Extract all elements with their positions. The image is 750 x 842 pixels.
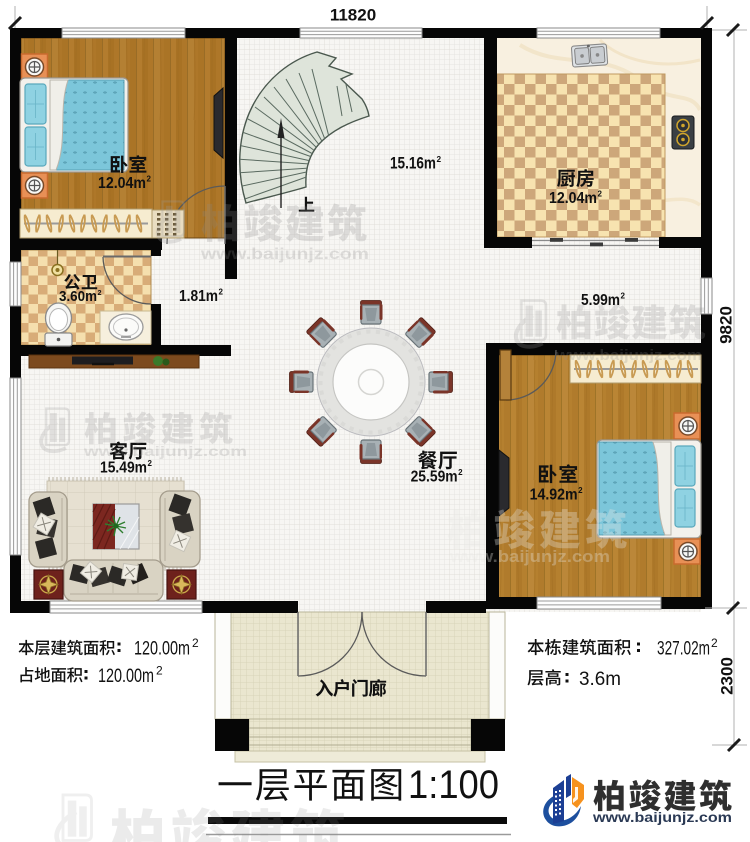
- svg-text:2: 2: [148, 459, 153, 468]
- svg-text:25.59m: 25.59m: [411, 469, 458, 486]
- svg-text:2: 2: [219, 288, 224, 297]
- svg-text:2: 2: [578, 486, 583, 495]
- svg-text:2: 2: [156, 664, 163, 678]
- svg-text:2: 2: [98, 288, 102, 297]
- svg-text:2: 2: [621, 292, 626, 301]
- svg-text:327.02m: 327.02m: [657, 639, 710, 660]
- svg-text:9820: 9820: [717, 306, 736, 344]
- svg-text:12.04m: 12.04m: [549, 190, 597, 207]
- svg-text:2: 2: [598, 190, 603, 199]
- svg-text:www.baijunjz.com: www.baijunjz.com: [200, 246, 369, 263]
- svg-text:www.baijunjz.com: www.baijunjz.com: [449, 548, 610, 566]
- svg-text:14.92m: 14.92m: [530, 487, 578, 504]
- svg-text:15.49m: 15.49m: [100, 460, 147, 477]
- svg-text:15.16m: 15.16m: [390, 155, 436, 173]
- svg-text:2300: 2300: [718, 657, 737, 695]
- svg-text:3.6m: 3.6m: [579, 669, 621, 690]
- svg-text:3.60m: 3.60m: [59, 289, 97, 305]
- svg-text:www.baijunjz.com: www.baijunjz.com: [83, 444, 247, 459]
- svg-text:12.04m: 12.04m: [98, 175, 146, 192]
- svg-text:1.81m: 1.81m: [179, 288, 218, 305]
- svg-text:2: 2: [458, 468, 463, 477]
- svg-text:120.00m: 120.00m: [98, 666, 154, 687]
- svg-text:www.baijunjz.com: www.baijunjz.com: [555, 347, 702, 364]
- svg-text:11820: 11820: [330, 6, 376, 25]
- svg-text:2: 2: [711, 636, 718, 650]
- svg-text:1:100: 1:100: [408, 763, 499, 807]
- svg-text:2: 2: [147, 175, 152, 184]
- svg-text:2: 2: [437, 155, 442, 164]
- svg-text:www.baijunjz.com: www.baijunjz.com: [592, 810, 732, 825]
- svg-text:2: 2: [192, 636, 199, 650]
- svg-text:120.00m: 120.00m: [134, 639, 190, 660]
